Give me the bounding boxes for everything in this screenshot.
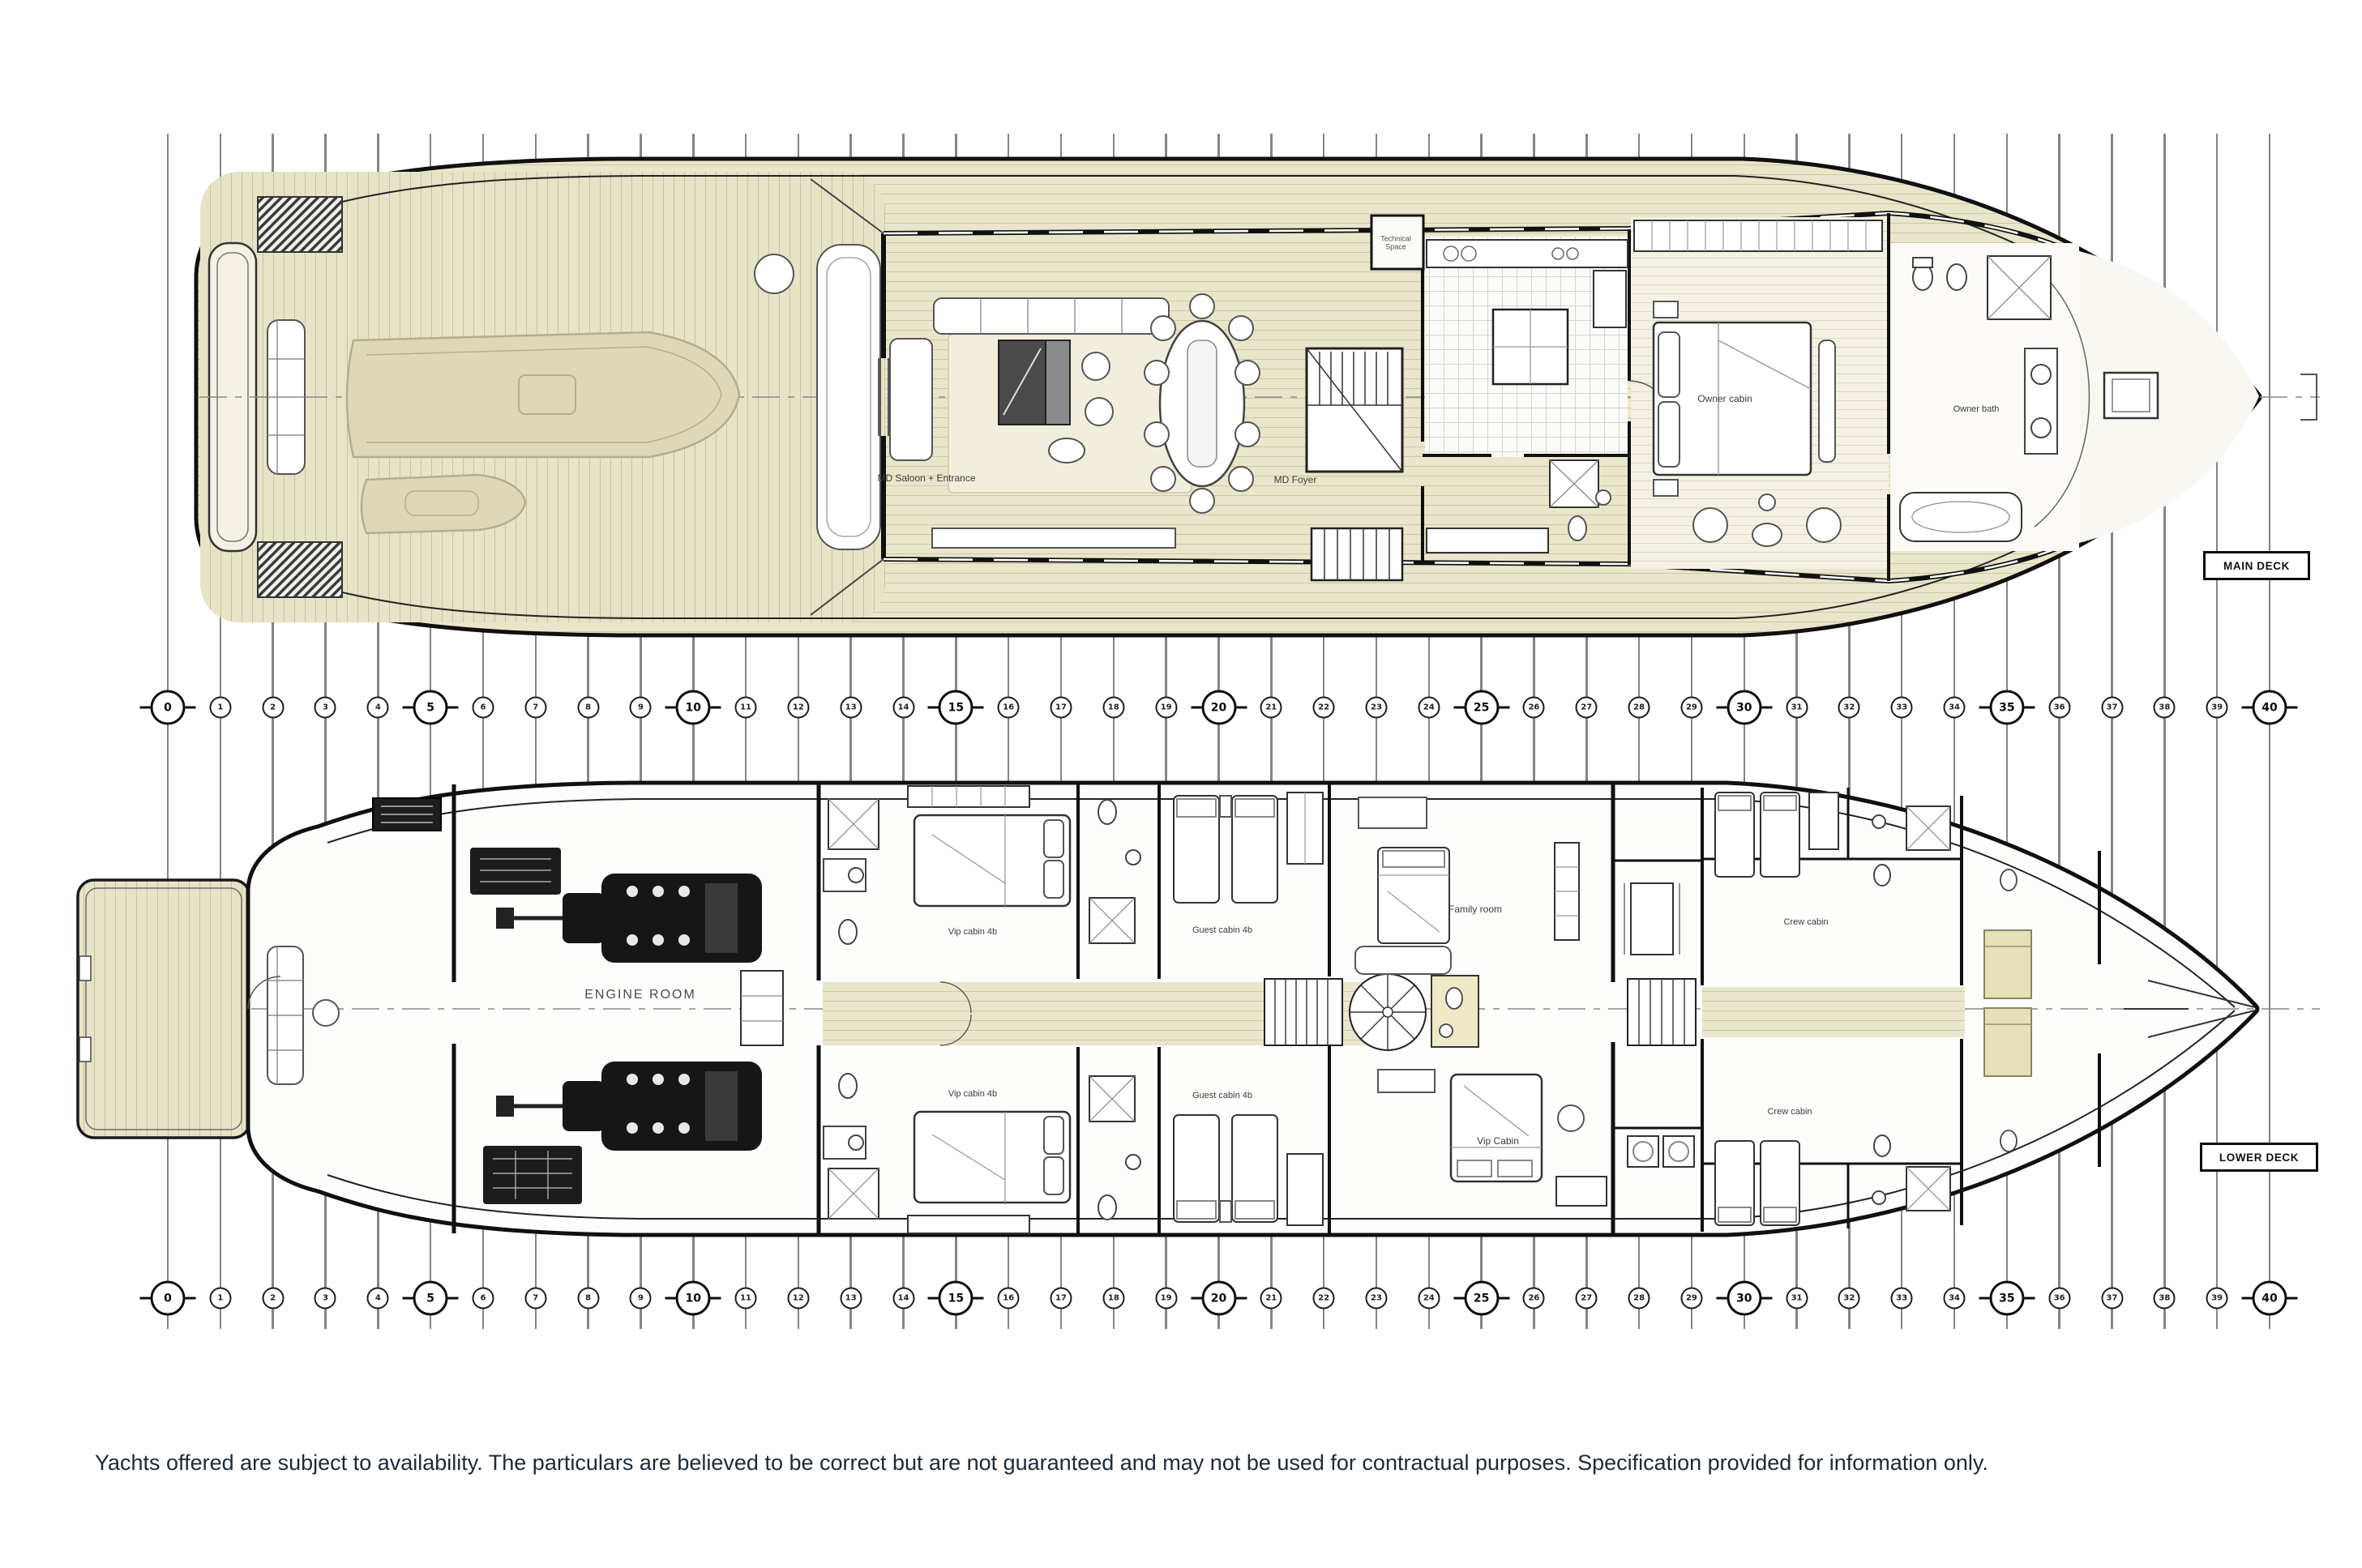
foyer-stairs — [1307, 348, 1402, 580]
label-engine-room: ENGINE ROOM — [584, 988, 696, 1002]
label-family-room: Family room — [1448, 904, 1502, 915]
label-crew-cabin-2: Crew cabin — [1767, 1107, 1812, 1117]
label-guest-cabin-sb: Guest cabin 4b — [1192, 1091, 1252, 1100]
aft-stairs-port — [258, 197, 342, 252]
stowed-tender-ghost — [347, 332, 739, 457]
main-deck-tag: MAIN DECK — [2203, 551, 2310, 580]
label-md-saloon: MD Saloon + Entrance — [877, 472, 975, 484]
aft-stairs-stbd — [258, 542, 342, 597]
label-md-foyer: MD Foyer — [1274, 474, 1317, 485]
swim-platform — [78, 880, 250, 1138]
label-vip-cabin-sb: Vip cabin 4b — [948, 1089, 997, 1099]
label-vip-cabin-ps: Vip cabin 4b — [948, 927, 997, 937]
label-crew-cabin-1: Crew cabin — [1783, 917, 1828, 927]
label-technical-space: Technical Space — [1371, 235, 1421, 252]
lower-deck-plan — [78, 783, 2320, 1235]
yacht-ga-sheet: 0011223344556677889910101111121213131414… — [0, 0, 2362, 1568]
disclaimer-text: Yachts offered are subject to availabili… — [95, 1451, 1988, 1476]
label-vip-cabin-fwd: Vip Cabin — [1477, 1135, 1519, 1147]
jetski-ghost — [362, 475, 525, 533]
deck-plans-drawing — [0, 0, 2362, 1568]
label-owner-cabin: Owner cabin — [1697, 393, 1752, 404]
label-guest-cabin-ps: Guest cabin 4b — [1192, 925, 1252, 935]
label-owner-bath: Owner bath — [1953, 404, 2000, 414]
lower-deck-tag: LOWER DECK — [2200, 1143, 2318, 1172]
main-deck-plan — [196, 159, 2320, 635]
